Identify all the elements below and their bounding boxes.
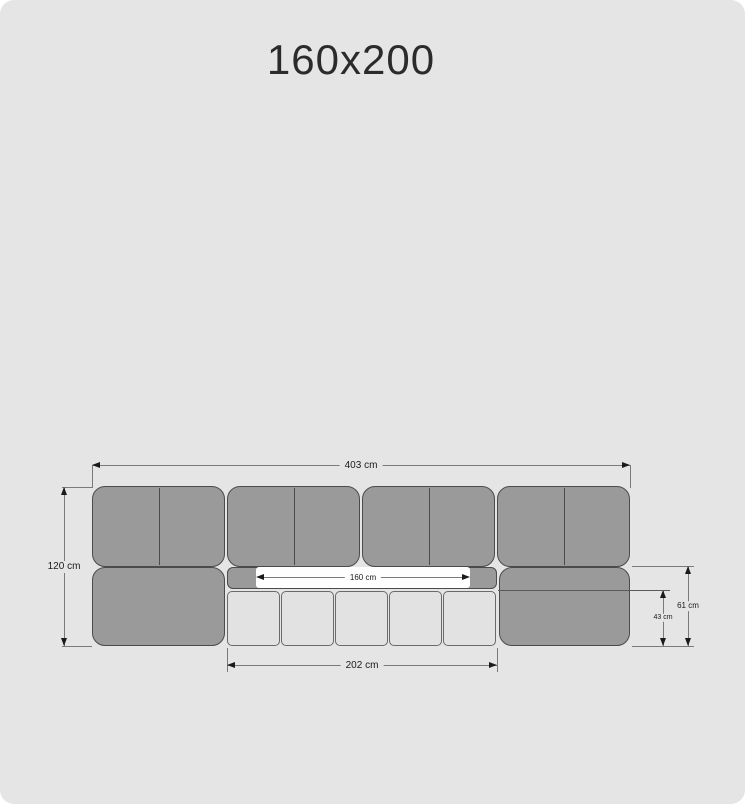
arrow-down-icon — [685, 638, 691, 646]
arrow-right-icon — [489, 662, 497, 668]
extension-line — [227, 648, 228, 672]
arrow-left-icon — [92, 462, 100, 468]
headboard-panel-group — [92, 486, 225, 567]
seat-module-right — [499, 567, 630, 646]
arrow-left-icon — [256, 574, 264, 580]
headboard-panel-group — [227, 486, 360, 567]
panel-divider — [159, 488, 160, 565]
dim-label-total-height: 120 cm — [43, 561, 86, 573]
seat-cushion — [227, 591, 280, 646]
arrow-up-icon — [61, 487, 67, 495]
bed-dimension-diagram: 160 cm 403 cm 120 cm 202 cm 6 — [0, 0, 745, 804]
panel-divider — [429, 488, 430, 565]
arrow-down-icon — [660, 638, 666, 646]
extension-line — [92, 465, 93, 488]
headboard-panel-group — [362, 486, 495, 567]
extension-line — [498, 590, 670, 591]
arrow-up-icon — [685, 566, 691, 574]
arrow-left-icon — [227, 662, 235, 668]
seat-module-left — [92, 567, 225, 646]
dim-label-base-height: 61 cm — [672, 601, 704, 611]
arrow-right-icon — [622, 462, 630, 468]
arrow-right-icon — [462, 574, 470, 580]
extension-line — [62, 646, 92, 647]
arrow-up-icon — [660, 590, 666, 598]
extension-line — [630, 465, 631, 488]
dim-label-cushion-height: 43 cm — [648, 614, 677, 622]
seat-cushion — [443, 591, 496, 646]
dim-label-cushion-row-width: 202 cm — [341, 660, 384, 672]
extension-line — [497, 648, 498, 672]
dim-label-total-width: 403 cm — [340, 460, 383, 472]
headboard-panel-group — [497, 486, 630, 567]
dim-label-mattress-width: 160 cm — [345, 573, 381, 583]
seat-cushion — [389, 591, 442, 646]
extension-line — [632, 646, 694, 647]
panel-divider — [564, 488, 565, 565]
seat-cushion — [281, 591, 334, 646]
product-size-card: 160x200 160 cm 403 cm — [0, 0, 745, 804]
panel-divider — [294, 488, 295, 565]
arrow-down-icon — [61, 638, 67, 646]
seat-cushion — [335, 591, 388, 646]
